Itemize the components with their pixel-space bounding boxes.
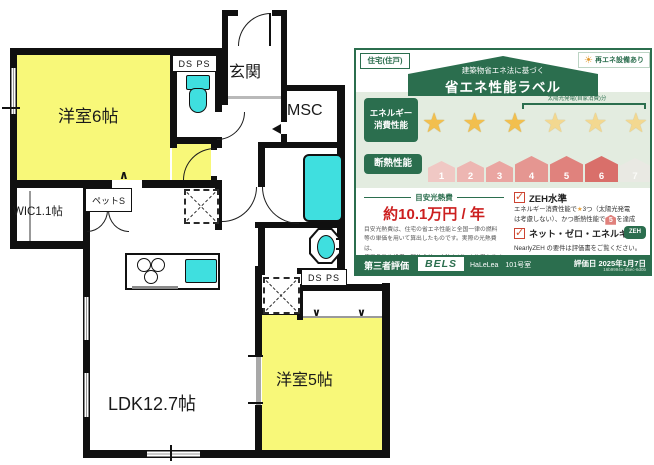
stove-burner <box>144 270 158 284</box>
cost-note-line: 等の単価を用いて算出したものです。実際の光熱費は、 <box>364 235 508 254</box>
toilet-door-arc <box>217 112 245 140</box>
room-label-genkan: 玄関 <box>229 58 261 82</box>
wall <box>272 10 287 16</box>
pet-space-box: ペットS <box>85 188 132 212</box>
card-title: 省エネ性能ラベル <box>408 76 598 96</box>
kitchen-counter <box>125 253 220 290</box>
wall <box>281 134 287 144</box>
energy-label-card: 住宅(住戸) 再エネ設備あり 建築物省エネ法に基づく 省エネ性能ラベル エネルギ… <box>354 48 652 276</box>
folding-door-mark <box>357 308 366 318</box>
bels-logo: BELS <box>418 257 464 271</box>
sliding-door <box>256 357 261 405</box>
wall <box>10 48 17 68</box>
insulation-scale: 1 2 3 4 5 6 7 <box>428 150 650 182</box>
insulation-level-4: 4 <box>515 156 548 182</box>
counter-line <box>336 238 344 240</box>
toilet-bowl <box>189 88 207 113</box>
evaluation-id: 16b99941-d5ec-6d0b <box>556 267 646 272</box>
energy-star-solar-icon <box>624 106 648 144</box>
wall <box>83 340 90 373</box>
duct-label-top: DS PS <box>172 55 217 72</box>
window-tick <box>248 402 263 404</box>
energy-label-line2: 消費性能 <box>364 119 418 131</box>
bath-door-arc <box>262 187 299 224</box>
ldk-door-arc <box>222 187 257 222</box>
wall <box>281 10 287 90</box>
wall <box>83 450 147 458</box>
wall <box>258 142 345 148</box>
zeh-badge-icon: ZEH <box>624 226 646 239</box>
window <box>147 450 200 458</box>
room-label-msc: MSC <box>287 102 323 120</box>
kitchen-sink <box>185 259 217 283</box>
energy-star-solid-icon <box>422 106 446 144</box>
msc-door-marker <box>272 124 281 134</box>
washbasin-outline <box>309 228 341 264</box>
renewable-box: 再エネ設備あり <box>578 52 650 68</box>
zeh-note-seg: 3つ（太陽光発電 <box>583 206 631 213</box>
energy-star-solar-icon <box>543 106 567 144</box>
room-label-ldk: LDK12.7帖 <box>108 390 196 416</box>
card-footer: 第三者評価 BELS HaLeLea 101号室 評価日 2025年1月7日 1… <box>356 255 650 274</box>
wall <box>258 142 265 187</box>
renewable-label: 再エネ設備あり <box>595 55 644 65</box>
energy-label-line1: エネルギー <box>364 107 418 119</box>
building-type: 住宅(住戸) <box>368 56 403 65</box>
wall <box>10 180 112 188</box>
zeh-note-seg: エネルギー消費性能で <box>514 206 577 213</box>
bathtub <box>303 154 343 222</box>
insulation-house-inline-icon: 5 <box>605 215 616 225</box>
refrigerator-space <box>184 189 219 224</box>
zeh-checkbox-icon <box>514 192 525 203</box>
pet-door-arc-left <box>87 210 108 232</box>
room-label-wic: WIC1.1帖 <box>13 203 63 219</box>
wall <box>200 450 390 458</box>
kitchen-toe-line <box>132 286 178 289</box>
pet-door-arc-right <box>108 210 129 232</box>
cost-note-line: 目安光熱費は、住宅の省エネ性能と全国一律の燃料 <box>364 226 508 235</box>
wall <box>282 85 345 91</box>
wall <box>255 405 262 452</box>
law-note: 建築物省エネ法に基づく <box>408 65 598 76</box>
insulation-level-6: 6 <box>585 156 618 182</box>
zeh-note: エネルギー消費性能で★3つ（太陽光発電 は考慮しない）、かつ断熱性能で5を達成 <box>514 205 652 225</box>
wall <box>222 10 228 105</box>
energy-stars <box>420 106 650 144</box>
nze-label: ネット・ゼロ・エネルギー <box>529 227 637 240</box>
zeh-note-seg: を達成 <box>616 216 635 223</box>
third-party-label: 第三者評価 <box>364 259 409 272</box>
insulation-level-5: 5 <box>550 156 583 182</box>
zeh-note-seg: は考慮しない）、かつ断熱性能で <box>514 216 605 223</box>
window <box>83 297 90 340</box>
wall <box>10 48 222 55</box>
duct-label-bottom: DS PS <box>301 269 347 286</box>
nearly-zeh-note: NearlyZEH の要件は評価書をご覧ください。 <box>514 243 652 252</box>
duct-label-text: DS PS <box>308 273 340 283</box>
room-label-pet: ペットS <box>92 194 125 207</box>
cost-heading: 目安光熱費 <box>415 192 453 203</box>
duct-label-text: DS PS <box>178 59 210 69</box>
cost-value: 約10.1万円 / 年 <box>364 203 504 224</box>
wall <box>10 241 90 249</box>
insulation-level-3: 3 <box>486 161 513 182</box>
insulation-row-label: 断熱性能 <box>364 154 422 174</box>
room-label-west6: 洋室6帖 <box>58 102 118 127</box>
window-tick <box>170 445 172 461</box>
insulation-level-7: 7 <box>620 158 650 182</box>
room-label-west5: 洋室5帖 <box>276 366 333 390</box>
washer-space <box>263 277 300 314</box>
folding-door-mark <box>312 308 321 318</box>
window <box>83 373 90 417</box>
window-tick <box>2 107 20 109</box>
nze-checkbox-icon <box>514 228 525 239</box>
building-type-box: 住宅(住戸) <box>360 53 410 69</box>
cost-heading-row: 目安光熱費 <box>364 192 504 202</box>
wall <box>382 283 390 458</box>
window-tick <box>248 355 263 357</box>
insulation-level-1: 1 <box>428 161 455 182</box>
folding-door-mark <box>119 170 129 181</box>
energy-star-solid-icon <box>462 106 486 144</box>
entrance-step-line <box>228 96 281 99</box>
entrance-door-arc <box>238 13 271 46</box>
wall <box>83 249 90 297</box>
energy-row-label: エネルギー 消費性能 <box>364 98 418 142</box>
divider <box>364 197 411 198</box>
divider <box>457 197 504 198</box>
property-name: HaLeLea 101号室 <box>470 260 531 270</box>
energy-star-solid-icon <box>503 106 527 144</box>
energy-star-solar-icon <box>583 106 607 144</box>
zeh-label: ZEH水準 <box>529 191 567 205</box>
floorplan-image: ペットS DS PS DS PS 洋室6帖 玄関 MSC WIC1.1帖 LDK… <box>0 0 654 465</box>
insulation-level-2: 2 <box>457 161 484 182</box>
wall <box>142 180 172 188</box>
sun-icon <box>584 55 593 66</box>
card-header: 建築物省エネ法に基づく 省エネ性能ラベル <box>408 56 598 96</box>
solar-note-text: 太陽光発電(自家消費)分 <box>548 96 607 102</box>
washbasin-bowl <box>317 235 335 259</box>
solar-bracket <box>522 103 646 105</box>
wall <box>255 222 345 228</box>
counter-line <box>336 248 344 250</box>
entrance-door-leaf <box>269 13 271 46</box>
